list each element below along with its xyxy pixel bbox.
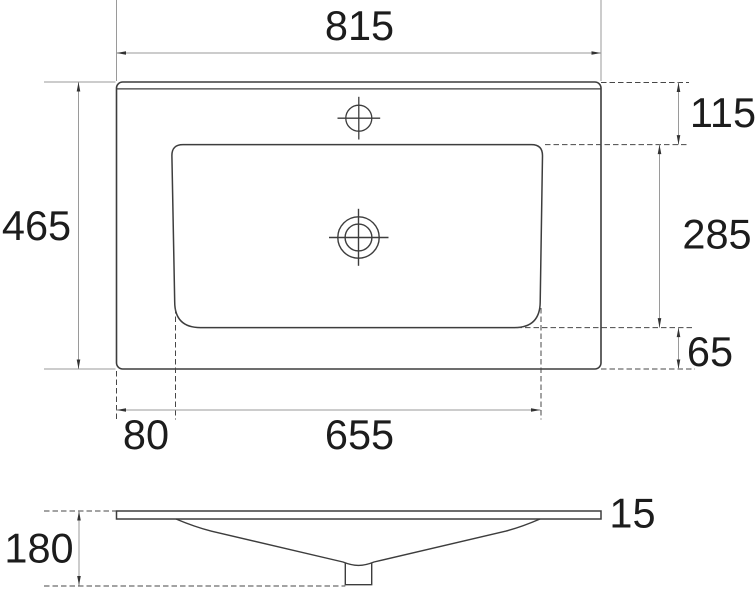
svg-text:65: 65 [687,328,733,375]
svg-text:15: 15 [609,490,655,537]
svg-text:655: 655 [325,411,394,458]
svg-text:180: 180 [4,525,73,572]
svg-text:815: 815 [325,2,394,49]
svg-text:285: 285 [682,211,751,258]
svg-text:465: 465 [2,202,71,249]
svg-text:115: 115 [690,89,756,136]
svg-text:80: 80 [123,411,169,458]
